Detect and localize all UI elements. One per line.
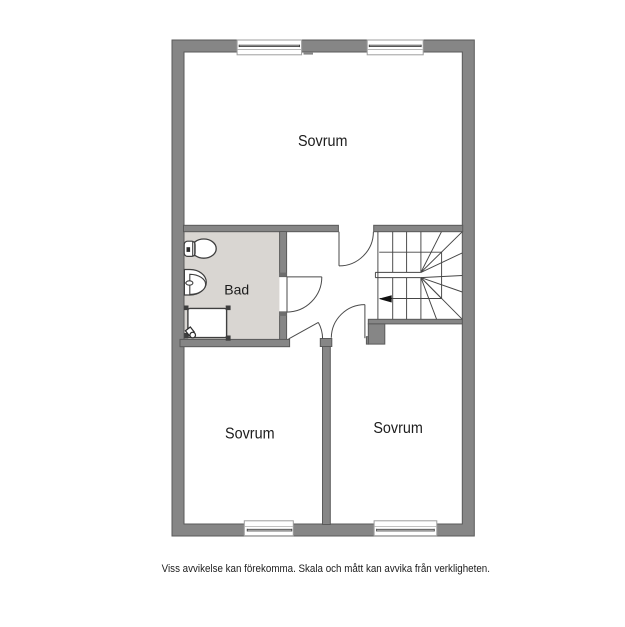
svg-text:Sovrum: Sovrum [373,421,422,437]
svg-text:Viss avvikelse kan förekomma.: Viss avvikelse kan förekomma. Skala och … [162,562,490,575]
svg-text:Sovrum: Sovrum [225,426,274,442]
svg-text:Sovrum: Sovrum [298,134,347,150]
svg-text:Bad: Bad [224,281,249,297]
